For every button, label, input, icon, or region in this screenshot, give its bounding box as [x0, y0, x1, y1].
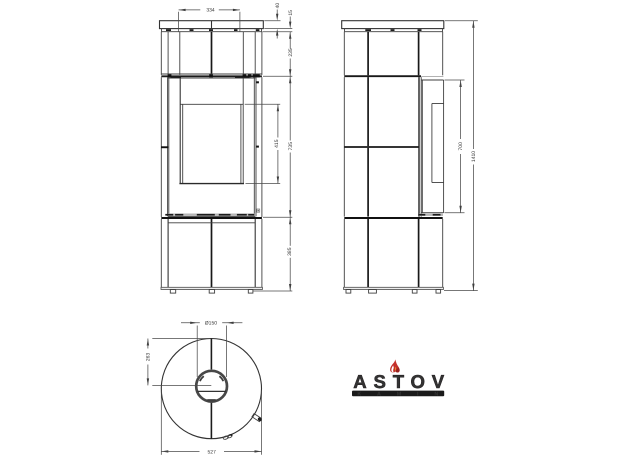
svg-text:40: 40 — [275, 3, 281, 9]
svg-text:334: 334 — [206, 8, 215, 14]
svg-text:700: 700 — [458, 142, 464, 151]
svg-text:415: 415 — [274, 139, 280, 148]
svg-text:KAMIN: KAMIN — [357, 391, 454, 397]
svg-text:235: 235 — [288, 48, 294, 57]
svg-text:15: 15 — [288, 10, 294, 16]
svg-text:735: 735 — [288, 142, 294, 151]
svg-text:1410: 1410 — [471, 151, 477, 162]
svg-text:527: 527 — [208, 449, 217, 455]
svg-text:Ø150: Ø150 — [205, 321, 217, 327]
svg-text:ASTOV: ASTOV — [353, 371, 451, 392]
svg-text:263: 263 — [145, 353, 151, 362]
svg-text:385: 385 — [287, 247, 293, 256]
